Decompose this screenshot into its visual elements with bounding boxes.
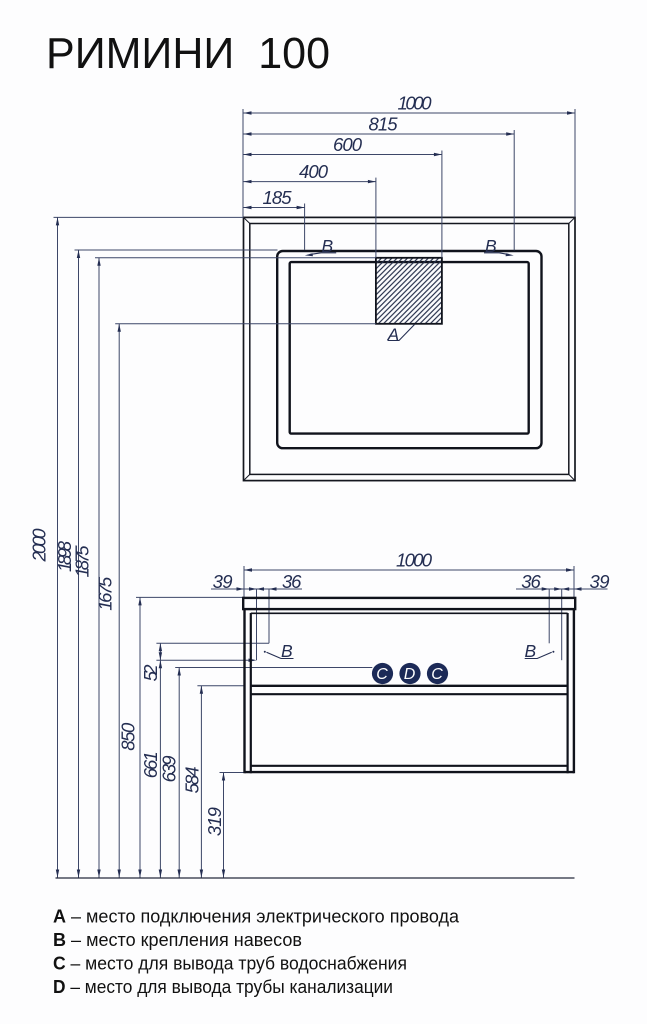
svg-text:400: 400 <box>299 161 329 182</box>
svg-text:815: 815 <box>369 114 399 135</box>
svg-text:1000: 1000 <box>396 550 433 571</box>
svg-text:D: D <box>404 666 416 683</box>
svg-text:584: 584 <box>182 766 203 793</box>
svg-text:39: 39 <box>590 571 610 592</box>
svg-text:1000: 1000 <box>398 93 433 114</box>
svg-text:36: 36 <box>282 571 302 592</box>
svg-text:А: А <box>387 325 399 344</box>
svg-text:B: B <box>525 641 537 661</box>
svg-text:B: B <box>485 236 497 256</box>
svg-text:52: 52 <box>140 664 161 682</box>
svg-text:850: 850 <box>118 722 139 751</box>
svg-text:600: 600 <box>333 134 363 155</box>
svg-text:C: C <box>431 666 443 683</box>
svg-text:B – место крепления навесов: B – место крепления навесов <box>53 929 302 950</box>
svg-text:B: B <box>322 236 334 256</box>
svg-text:2000: 2000 <box>29 528 50 563</box>
svg-text:C – место для вывода труб водо: C – место для вывода труб водоснабжения <box>53 953 407 974</box>
svg-text:36: 36 <box>521 571 541 592</box>
svg-text:B: B <box>281 641 293 661</box>
svg-text:D – место для вывода трубы кан: D – место для вывода трубы канализации <box>53 976 393 997</box>
svg-text:39: 39 <box>213 571 233 592</box>
svg-text:1875: 1875 <box>72 545 93 578</box>
svg-text:639: 639 <box>159 755 180 782</box>
svg-text:1675: 1675 <box>95 576 116 611</box>
svg-text:РИМИНИ 100: РИМИНИ 100 <box>46 29 330 78</box>
svg-text:185: 185 <box>263 187 293 208</box>
svg-text:A – место подключения электрич: A – место подключения электрического про… <box>53 906 460 927</box>
svg-text:319: 319 <box>204 807 225 836</box>
svg-text:C: C <box>376 666 388 683</box>
